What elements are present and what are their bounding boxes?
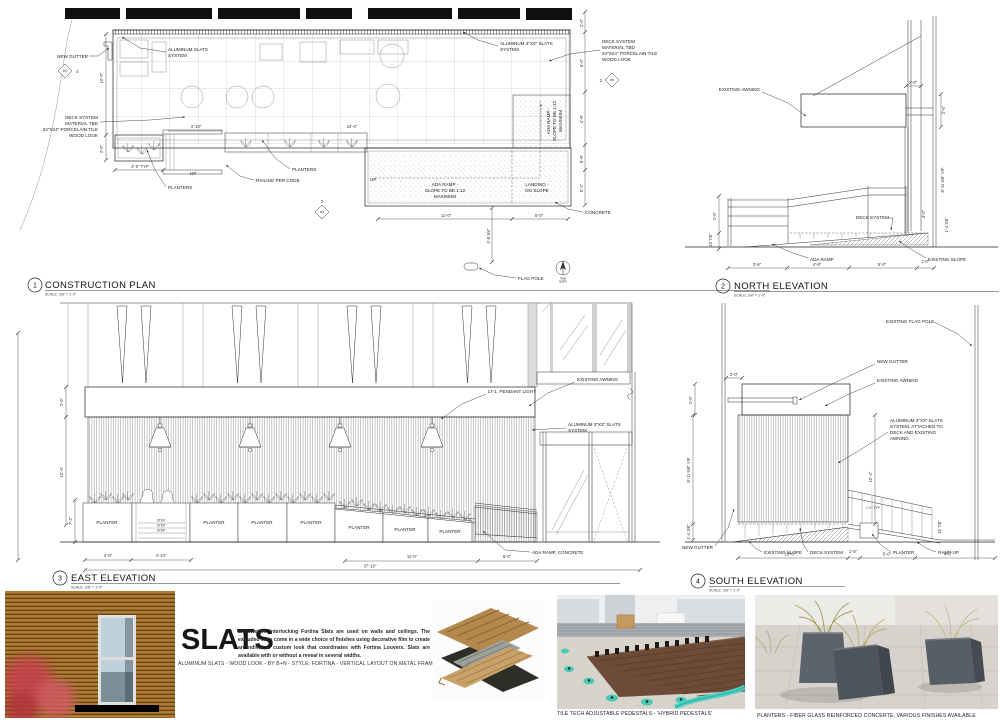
deck-note-right: DECK SYSTEM bbox=[602, 39, 635, 44]
svg-text:5'-0": 5'-0" bbox=[579, 58, 584, 67]
ada-ramp-concrete-label: ADA RAMP, CONCRETE bbox=[532, 550, 583, 555]
svg-text:10'-4": 10'-4" bbox=[868, 471, 873, 482]
svg-text:4'-9": 4'-9" bbox=[579, 114, 584, 123]
svg-text:37'-10": 37'-10" bbox=[364, 564, 378, 569]
svg-text:4'-0": 4'-0" bbox=[104, 553, 113, 558]
svg-text:11'-0": 11'-0" bbox=[441, 213, 452, 218]
flag-pole-symbol bbox=[464, 263, 478, 270]
svg-text:10 7/8": 10 7/8" bbox=[937, 520, 942, 534]
svg-text:MAXIMUM: MAXIMUM bbox=[558, 110, 563, 132]
north-railing-ramp bbox=[685, 186, 998, 247]
construction-plan: ADA RAMP - SLOPE TO BE 1:12 MAXIMUM ADA … bbox=[20, 8, 770, 297]
svg-text:3'-6": 3'-6" bbox=[753, 262, 762, 267]
svg-text:2'-0": 2'-0" bbox=[909, 80, 918, 85]
svg-text:PLANTER: PLANTER bbox=[439, 529, 461, 534]
svg-text:4: 4 bbox=[76, 69, 79, 74]
plan-number: 1 bbox=[33, 283, 37, 290]
east-scale: SCALE: 3/8" = 1'-0" bbox=[71, 586, 103, 590]
slats-text-block: SLATS Lightweight interlocking Fortina S… bbox=[177, 600, 433, 688]
plan-scale: SCALE: 3/8" = 1'-0" bbox=[45, 293, 77, 297]
svg-text:PLANTER: PLANTER bbox=[300, 520, 322, 525]
slat-profiles-photo bbox=[433, 600, 545, 700]
south-building-corner bbox=[722, 303, 725, 542]
svg-text:11'-0": 11'-0" bbox=[407, 554, 418, 559]
svg-text:5'-2": 5'-2" bbox=[579, 183, 584, 192]
planter-label: PLANTER bbox=[893, 550, 915, 555]
planter-c bbox=[925, 638, 975, 685]
svg-text:SYSTEM: SYSTEM bbox=[568, 428, 587, 433]
landing-label: LANDING - bbox=[525, 182, 549, 187]
svg-text:2'-6": 2'-6" bbox=[59, 397, 64, 406]
svg-text:8'-11 5/8" VIF: 8'-11 5/8" VIF bbox=[686, 457, 691, 482]
up-label-2: UP bbox=[370, 177, 376, 182]
plan-titleblock: 1 CONSTRUCTION PLAN SCALE: 3/8" = 1'-0" bbox=[28, 278, 770, 297]
south-slat-box bbox=[738, 415, 848, 522]
ada-ramp-vertical-label: ADA RAMP - bbox=[546, 107, 551, 134]
deck-system-label: DECK SYSTEM bbox=[810, 550, 843, 555]
svg-text:4: 4 bbox=[696, 579, 700, 586]
wood-slats-photo bbox=[5, 591, 175, 718]
svg-text:3: 3 bbox=[58, 576, 62, 583]
north-titleblock: 2 NORTH ELEVATION SCALE: 3/8" = 1'-0" bbox=[716, 279, 999, 298]
south-planter-box bbox=[860, 523, 878, 538]
svg-text:WOOD LOOK: WOOD LOOK bbox=[602, 57, 632, 62]
existing-slope-hatch bbox=[810, 233, 928, 245]
svg-text:STEP: STEP bbox=[157, 529, 166, 533]
svg-text:3: 3 bbox=[321, 199, 324, 204]
north-awning bbox=[801, 94, 906, 127]
svg-text:MAXIMUM: MAXIMUM bbox=[434, 194, 456, 199]
svg-text:STEP: STEP bbox=[157, 524, 166, 528]
planters-label-1: PLANTERS bbox=[168, 185, 192, 190]
existing-awning-label: EXISTING AWNING bbox=[877, 378, 919, 383]
svg-text:PLANTER: PLANTER bbox=[96, 520, 118, 525]
planters-photo bbox=[755, 595, 998, 709]
deck-system-label: DECK SYSTEM bbox=[856, 215, 889, 220]
aluminum-3x3-label: ALUMINUM 3"X3" SLATS bbox=[890, 418, 943, 423]
svg-text:PP1: PP1 bbox=[320, 212, 325, 214]
svg-text:3'-0": 3'-0" bbox=[921, 209, 926, 218]
drawings-svg: ADA RAMP - SLOPE TO BE 1:12 MAXIMUM ADA … bbox=[0, 0, 1000, 594]
svg-text:10'-0": 10'-0" bbox=[785, 552, 796, 557]
aluminum-3x3-label: ALUMINUM 3"X3" SLATS bbox=[568, 422, 621, 427]
svg-text:PLANTER: PLANTER bbox=[348, 525, 370, 530]
new-gutter-label: NEW GUTTER bbox=[57, 54, 89, 59]
svg-text:SYSTEM: SYSTEM bbox=[500, 47, 519, 52]
south-deck-slope bbox=[733, 524, 848, 542]
east-awning-band bbox=[85, 387, 535, 417]
north-elevation: EXISTING AWNING DECK SYSTEM ADA RAMP EXI… bbox=[685, 16, 999, 298]
svg-text:7'-2": 7'-2" bbox=[68, 516, 73, 525]
svg-text:SYSTEM, ATTACHED TO: SYSTEM, ATTACHED TO bbox=[890, 424, 943, 429]
svg-text:MATERIAL TBD: MATERIAL TBD bbox=[602, 45, 636, 50]
east-elevation: PLANTER STEP STEP STEP PLANTER PLANTER P… bbox=[16, 302, 660, 590]
svg-text:WOOD LOOK: WOOD LOOK bbox=[69, 133, 99, 138]
svg-text:NO SLOPE: NO SLOPE bbox=[525, 188, 549, 193]
east-titleblock: 3 EAST ELEVATION SCALE: 3/8" = 1'-0" bbox=[53, 571, 620, 590]
true-north-symbol: TRUE NORTH bbox=[556, 261, 570, 284]
svg-text:2'-6": 2'-6" bbox=[941, 105, 946, 114]
flag-pole-label: EXISTING FLAG POLE bbox=[886, 319, 934, 324]
south-title: SOUTH ELEVATION bbox=[709, 576, 803, 587]
svg-text:10'-4": 10'-4" bbox=[59, 466, 64, 477]
aluminum-slats-label: ALUMINUM SLATS bbox=[168, 47, 208, 52]
svg-text:4'-10": 4'-10" bbox=[191, 124, 202, 129]
svg-text:8'-11 5/8" VIF: 8'-11 5/8" VIF bbox=[940, 167, 945, 192]
flag-pole-label: FLAG POLE bbox=[518, 276, 544, 281]
planter-b bbox=[833, 645, 883, 700]
pedestal-deck-photo bbox=[557, 595, 745, 709]
south-titleblock: 4 SOUTH ELEVATION SCALE: 3/8" = 1'-0" bbox=[691, 574, 845, 593]
south-elevation: 1'-0" TYP EXISTING FLAG POLE NEW GUTTER … bbox=[682, 303, 997, 593]
south-ramp-railing: 1'-0" TYP bbox=[848, 490, 995, 543]
existing-wall-poche bbox=[65, 8, 572, 20]
planters-label-2: PLANTERS bbox=[292, 167, 316, 172]
upper-ada-ramp: ADA RAMP - SLOPE TO BE 1:12 MAXIMUM bbox=[513, 95, 570, 148]
svg-text:TRUE: TRUE bbox=[560, 279, 567, 281]
south-scale: SCALE: 3/8" = 1'-0" bbox=[709, 589, 741, 593]
concrete-label: CONCRETE bbox=[585, 210, 611, 215]
north-scale: SCALE: 3/8" = 1'-0" bbox=[734, 294, 766, 298]
svg-text:SLOPE TO BE 1:12: SLOPE TO BE 1:12 bbox=[552, 100, 557, 141]
window-in-photo bbox=[98, 615, 136, 705]
north-title: NORTH ELEVATION bbox=[734, 281, 828, 292]
existing-awning-label: EXISTING AWNING bbox=[577, 377, 619, 382]
tile-tech-caption: TILE TECH ADJUSTABLE PEDESTALS - 'HYBRID… bbox=[557, 711, 712, 717]
svg-text:4'-9": 4'-9" bbox=[813, 262, 822, 267]
svg-text:5'-0": 5'-0" bbox=[878, 262, 887, 267]
existing-slope-label: EXISTING SLOPE bbox=[928, 257, 966, 262]
svg-text:24"X24" PORCELAIN TILE: 24"X24" PORCELAIN TILE bbox=[43, 127, 98, 132]
svg-text:PP1: PP1 bbox=[63, 71, 68, 73]
svg-text:2'-0": 2'-0" bbox=[579, 18, 584, 27]
up-label-1: UP bbox=[190, 171, 196, 176]
svg-text:2: 2 bbox=[721, 284, 725, 291]
svg-text:1'-0": 1'-0" bbox=[849, 549, 858, 554]
svg-text:MATERIAL TBD: MATERIAL TBD bbox=[65, 121, 99, 126]
existing-slope-label: EXISTING SLOPE bbox=[764, 550, 802, 555]
ada-ramp-label: ADA RAMP - bbox=[432, 182, 459, 187]
svg-text:PLANTER: PLANTER bbox=[203, 520, 225, 525]
slats-caption: ALUMINUM SLATS - WOOD LOOK - BY B+N - ST… bbox=[178, 661, 433, 667]
north-notes: EXISTING AWNING DECK SYSTEM ADA RAMP EXI… bbox=[719, 87, 966, 262]
east-upper-facade bbox=[60, 302, 633, 400]
svg-text:5'-0": 5'-0" bbox=[883, 552, 892, 557]
aluminum-3x3-label: ALUMINUM 3"X3" SLATS bbox=[500, 41, 553, 46]
svg-text:5'-0": 5'-0" bbox=[503, 554, 512, 559]
svg-text:NORTH: NORTH bbox=[559, 282, 567, 284]
plan-title: CONSTRUCTION PLAN bbox=[45, 280, 156, 291]
svg-text:AWNING: AWNING bbox=[890, 436, 909, 441]
existing-awning-label: EXISTING AWNING bbox=[719, 87, 761, 92]
svg-text:STEP: STEP bbox=[157, 519, 166, 523]
deck-note-left: DECK SYSTEM bbox=[65, 115, 98, 120]
pendant-label: LT-1, PENDANT LIGHT bbox=[488, 389, 536, 394]
railing-label: RAILING PER CODE bbox=[256, 178, 300, 183]
svg-text:2: 2 bbox=[600, 78, 603, 83]
wood-photo-caption-band bbox=[75, 705, 159, 712]
svg-text:2'-0": 2'-0" bbox=[730, 372, 739, 377]
architectural-sheet: ADA RAMP - SLOPE TO BE 1:12 MAXIMUM ADA … bbox=[0, 0, 1000, 728]
slats-paragraph: Lightweight interlocking Fortina Slats a… bbox=[238, 629, 430, 661]
south-gutter bbox=[728, 398, 795, 402]
east-title: EAST ELEVATION bbox=[71, 573, 156, 584]
new-gutter-2-label: NEW GUTTER bbox=[682, 545, 714, 550]
new-gutter-label: NEW GUTTER bbox=[877, 359, 909, 364]
svg-text:5'-0": 5'-0" bbox=[535, 213, 544, 218]
flag-pole-lines bbox=[975, 305, 978, 560]
svg-text:PLANTER: PLANTER bbox=[251, 520, 273, 525]
svg-text:PLANTER: PLANTER bbox=[394, 527, 416, 532]
svg-text:24"X24" PORCELAIN TILE: 24"X24" PORCELAIN TILE bbox=[602, 51, 657, 56]
svg-text:10 7/8": 10 7/8" bbox=[708, 233, 713, 247]
svg-text:2'-6": 2'-6" bbox=[688, 395, 693, 404]
slat-edge-strip bbox=[113, 30, 570, 34]
svg-text:4'-10": 4'-10" bbox=[156, 553, 167, 558]
svg-text:1'-4 3/8": 1'-4 3/8" bbox=[944, 217, 949, 233]
svg-text:4'-9" TYP: 4'-9" TYP bbox=[131, 164, 149, 169]
svg-text:4'-8 3/4": 4'-8 3/4" bbox=[486, 228, 491, 244]
svg-text:SLOPE TO BE 1:12: SLOPE TO BE 1:12 bbox=[425, 188, 466, 193]
svg-text:SYSTEM: SYSTEM bbox=[168, 53, 187, 58]
rail-typ-label: 1'-0" TYP bbox=[866, 506, 881, 510]
svg-text:2'-6": 2'-6" bbox=[712, 211, 717, 220]
svg-text:24'-0": 24'-0" bbox=[347, 124, 358, 129]
svg-text:1'-4 3/8": 1'-4 3/8" bbox=[686, 524, 691, 540]
svg-text:2'-0": 2'-0" bbox=[99, 144, 104, 153]
planters-caption: PLANTERS - FIBER GLASS REINFORCED CONCER… bbox=[757, 713, 976, 719]
svg-text:DECK AND EXISTING: DECK AND EXISTING bbox=[890, 430, 937, 435]
svg-text:PP1: PP1 bbox=[610, 80, 615, 82]
svg-text:10'-0": 10'-0" bbox=[99, 72, 104, 83]
svg-text:9'-9": 9'-9" bbox=[579, 154, 584, 163]
svg-text:1'-0": 1'-0" bbox=[921, 259, 930, 264]
svg-text:4'-6": 4'-6" bbox=[944, 552, 953, 557]
